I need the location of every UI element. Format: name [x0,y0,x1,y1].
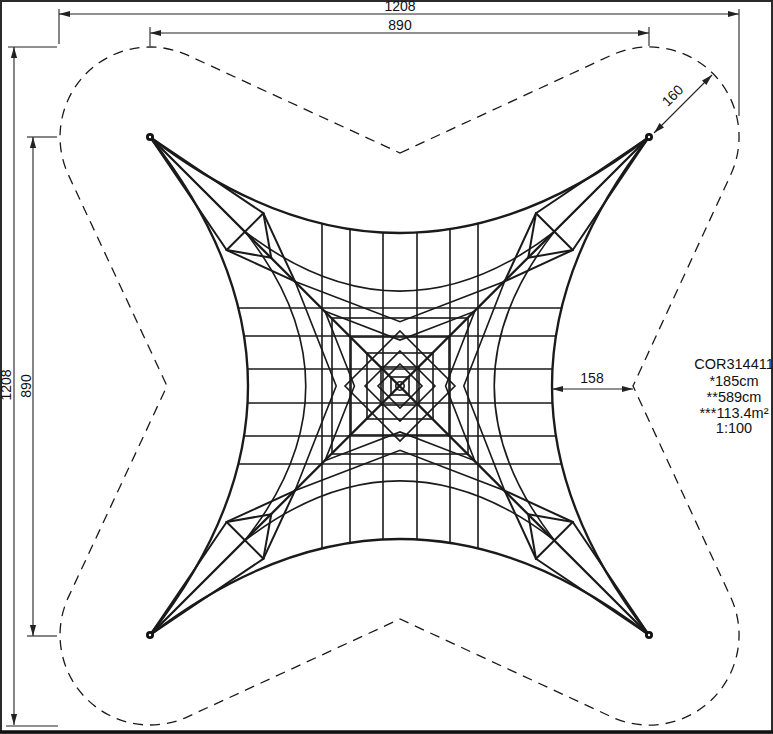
dimension-lines [6,9,739,726]
dim-label-side-offset: 158 [580,370,604,386]
title-block: COR314411 *185cm **589cm ***113.4m² 1:10… [694,356,773,436]
spec-fall-height: **589cm [707,389,762,405]
climbing-net-structure [150,137,649,635]
drawing-scale: 1:100 [716,420,752,436]
dim-label-net-height: 890 [18,374,34,398]
dim-label-net-width: 890 [388,17,412,33]
spec-area: ***113.4m² [699,405,768,421]
product-code: COR314411 [694,356,773,372]
technical-drawing: 1208 890 1208 890 158 160 COR314411 *185… [0,0,773,734]
dim-label-total-width: 1208 [384,0,415,14]
dim-label-total-height: 1208 [0,369,14,400]
spec-height: *185cm [709,373,758,389]
drawing-sheet: 1208 890 1208 890 158 160 COR314411 *185… [0,0,773,734]
